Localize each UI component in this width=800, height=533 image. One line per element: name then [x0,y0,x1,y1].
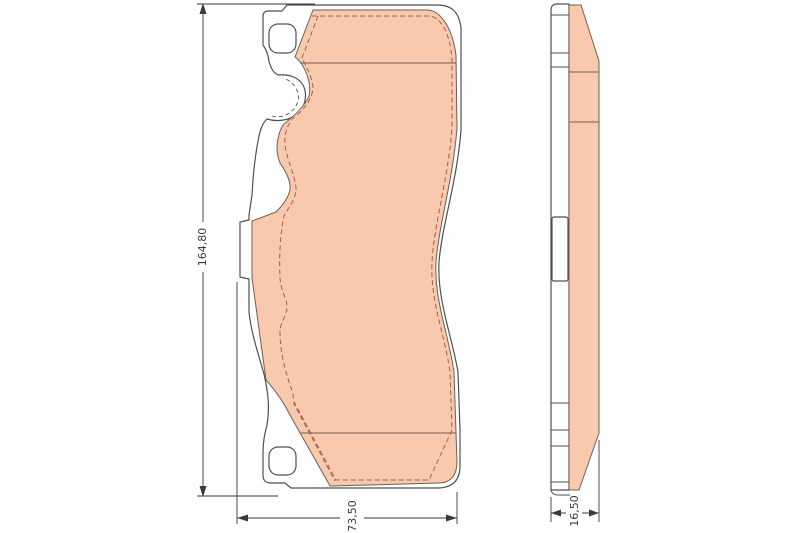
thickness-arrow-left [551,510,561,517]
height-dimension-label: 164,80 [196,228,209,267]
thickness-dimension-label: 16,50 [568,495,581,527]
width-arrow-right [446,515,457,522]
mounting-hole-top [269,24,296,53]
hidden-arc-guide-lug [272,78,298,117]
height-arrow-up [200,3,207,14]
front-view [240,5,461,488]
width-dimension-label: 73,50 [346,500,359,532]
side-view [551,4,599,495]
width-arrow-left [237,515,248,522]
side-retaining-clip [552,217,568,281]
height-arrow-down [200,486,207,497]
brake-pad-technical-drawing: 164,80 73,50 16,50 [0,0,800,533]
thickness-arrow-right [589,510,599,517]
drawing-svg: 164,80 73,50 16,50 [0,0,800,533]
side-friction-material [569,5,599,490]
mounting-hole-bottom [269,447,296,475]
